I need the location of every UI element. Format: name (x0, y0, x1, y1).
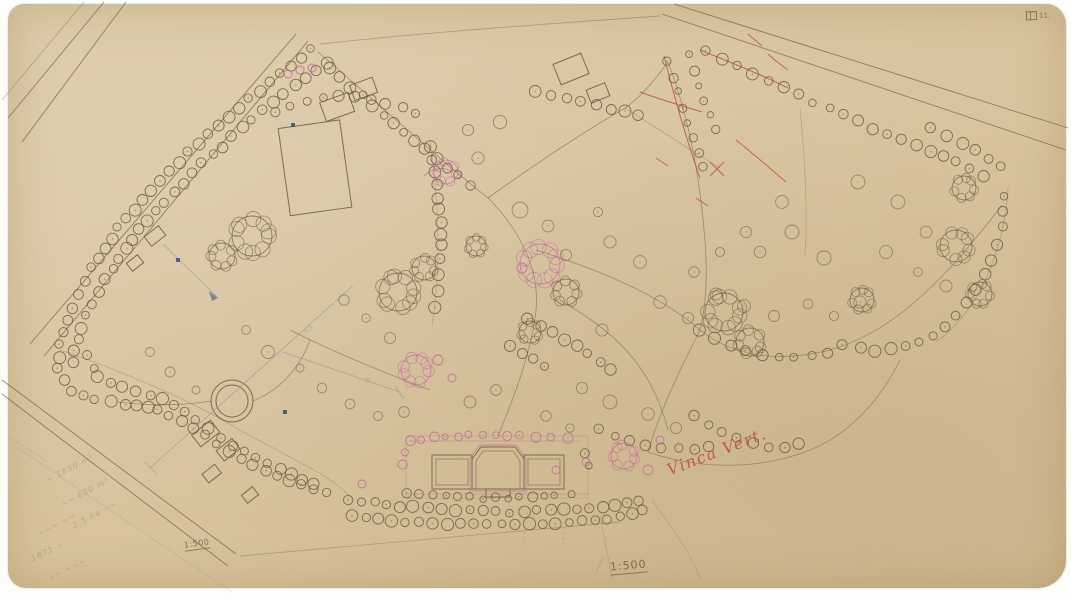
tree-symbol (606, 105, 616, 115)
tree-symbol (286, 102, 294, 110)
trees-layer (52, 45, 1007, 531)
tree-symbol (373, 513, 384, 524)
tree-center-dot (469, 509, 471, 511)
tree-symbol (712, 125, 720, 133)
tree-symbol (941, 130, 953, 142)
tree-center-dot (823, 257, 825, 259)
tree-center-dot (925, 231, 927, 233)
road-topleft-3 (2, 2, 84, 100)
tree-symbol (74, 290, 84, 300)
tree-symbol (512, 202, 528, 218)
tree-center-dot (220, 437, 222, 439)
tree-symbol (146, 348, 155, 357)
measure-text-layer: 4,56 (303, 324, 370, 385)
tree-center-dot (519, 434, 521, 436)
tree-center-dot (291, 473, 293, 475)
blue-marks-layer (176, 123, 295, 414)
measure-number: 6 (364, 377, 370, 385)
scanned-park-plan: 4,56 1:500 1:500 Vinca Vert. 11. ~ 1850 … (0, 0, 1071, 600)
survey-lines (8, 244, 604, 592)
tree-center-dot (495, 389, 497, 391)
tree-symbol (552, 466, 560, 474)
tree-symbol (634, 496, 644, 506)
tree-center-dot (351, 515, 353, 517)
tree-symbol (769, 311, 780, 322)
red-scribble (768, 54, 788, 70)
tree-center-dot (415, 113, 417, 115)
tree-symbol (583, 349, 592, 358)
tree-center-dot (403, 411, 405, 413)
tree-symbol (407, 500, 419, 512)
tree-symbol (300, 73, 311, 84)
tree-symbol (277, 89, 288, 100)
tree-symbol (255, 86, 267, 98)
tree-symbol (951, 311, 960, 320)
tree-symbol (869, 345, 881, 357)
tree-center-dot (193, 428, 195, 430)
tree-center-dot (798, 93, 800, 95)
tree-symbol (371, 498, 380, 507)
cluster-lobe (617, 440, 627, 450)
tree-symbol (482, 520, 491, 529)
tree-center-dot (169, 371, 171, 373)
palace-left-wing-inner (436, 459, 468, 485)
tree-center-dot (693, 415, 695, 417)
tree-center-dot (58, 343, 60, 345)
tree-symbol (776, 196, 789, 209)
cluster-lobe (423, 365, 434, 376)
tree-symbol (174, 157, 186, 169)
tree-center-dot (323, 97, 325, 99)
path-fountain-ne (253, 340, 310, 401)
tree-symbol (793, 438, 804, 449)
tree-symbol (498, 520, 506, 528)
tree-symbol (523, 518, 535, 530)
tree-center-dot (588, 508, 590, 510)
tree-center-dot (134, 209, 136, 211)
tree-symbol (193, 138, 205, 150)
tree-center-dot (265, 470, 267, 472)
tree-symbol (137, 195, 148, 206)
cluster-lobe (560, 276, 570, 286)
tree-center-dot (930, 127, 932, 129)
tree-center-dot (698, 152, 700, 154)
tree-center-dot (482, 434, 484, 436)
tree-symbol (380, 99, 391, 110)
tree-symbol (152, 207, 160, 215)
tree-symbol (380, 112, 388, 120)
tree-symbol (605, 364, 616, 375)
tree-symbol (430, 432, 440, 442)
tree-center-dot (218, 125, 220, 127)
tree-symbol (528, 492, 538, 502)
tree-center-dot (645, 445, 647, 447)
tree-symbol (237, 454, 246, 463)
tree-symbol (401, 518, 409, 526)
tree-symbol (339, 295, 349, 305)
cluster-lobe (701, 304, 715, 318)
tree-center-dot (86, 354, 88, 356)
cluster-lobe (969, 185, 978, 194)
inventory-stamp: 11. (1026, 11, 1050, 21)
tree-center-dot (150, 395, 152, 397)
tree-symbol (432, 285, 444, 297)
tree-symbol (91, 371, 103, 383)
tree-symbol (362, 513, 370, 521)
tree-symbol (696, 83, 702, 89)
tree-symbol (560, 249, 571, 260)
tree-center-dot (693, 271, 695, 273)
road-sw-1 (2, 380, 236, 554)
tree-center-dot (996, 244, 998, 246)
outbuilding-top-1 (553, 53, 589, 85)
tree-symbol (726, 340, 737, 351)
tree-symbol (603, 395, 617, 409)
tree-center-dot (444, 436, 446, 438)
tree-symbol (177, 416, 188, 427)
tree-center-dot (639, 261, 641, 263)
tree-center-dot (72, 308, 74, 310)
tree-symbol (541, 411, 551, 421)
tree-symbol (113, 223, 121, 231)
tree-symbol (996, 162, 1005, 171)
tree-symbol (465, 431, 472, 438)
tree-symbol (478, 505, 488, 515)
plan-drawing: 4,56 (0, 0, 1071, 600)
tree-center-dot (843, 113, 845, 115)
tree-symbol (192, 386, 200, 394)
tree-symbol (308, 478, 319, 489)
tree-symbol (466, 181, 475, 190)
tree-symbol (940, 280, 952, 292)
tree-center-dot (439, 258, 441, 260)
scale-label-main: 1:500 (609, 557, 647, 575)
tree-center-dot (547, 225, 549, 227)
tree-symbol (573, 505, 581, 513)
tree-symbol (121, 213, 131, 223)
tree-symbol (433, 203, 445, 215)
tree-symbol (297, 53, 307, 63)
tree-center-dot (365, 317, 367, 319)
tree-center-dot (905, 345, 907, 347)
tree-symbol (116, 381, 127, 392)
tree-symbol (518, 349, 528, 359)
tree-center-dot (687, 317, 689, 319)
road-ne-1 (662, 14, 1066, 150)
tree-center-dot (509, 345, 511, 347)
tree-center-dot (597, 211, 599, 213)
tree-center-dot (187, 151, 189, 153)
tree-symbol (234, 103, 245, 114)
tree-center-dot (666, 60, 668, 62)
tree-symbol (268, 96, 280, 108)
cluster-lobe (950, 254, 962, 266)
cluster-lobe (526, 318, 534, 326)
tree-center-dot (518, 496, 520, 498)
tree-symbol (63, 315, 73, 325)
tree-center-dot (569, 427, 571, 429)
tree-center-dot (595, 519, 597, 521)
palace-footprint (432, 447, 564, 497)
cluster-lobe (754, 329, 765, 340)
roadside-building-2 (126, 255, 143, 271)
cluster-lobe (864, 288, 873, 297)
cluster-lobe (608, 452, 618, 462)
tree-symbol (957, 138, 969, 150)
tree-symbol (505, 495, 512, 502)
cluster-lobe (216, 240, 226, 250)
tree-symbol (717, 428, 726, 437)
cluster-lobe (848, 298, 857, 307)
tree-symbol (317, 383, 327, 393)
tree-center-dot (600, 361, 602, 363)
tree-symbol (612, 432, 620, 440)
red-path-3 (700, 50, 788, 88)
tree-symbol (604, 236, 616, 248)
tree-symbol (670, 422, 681, 433)
tree-center-dot (83, 395, 85, 397)
tree-center-dot (157, 409, 159, 411)
tree-symbol (68, 357, 79, 368)
tree-center-dot (544, 366, 546, 368)
tree-symbol (94, 287, 105, 298)
tree-symbol (54, 352, 66, 364)
measure-line-1 (150, 291, 347, 468)
tree-symbol (142, 401, 154, 413)
tree-center-dot (85, 314, 87, 316)
tree-center-dot (267, 351, 269, 353)
tree-center-dot (424, 148, 426, 150)
tree-symbol (417, 436, 424, 443)
blue-marker-square (291, 123, 295, 127)
tree-center-dot (329, 67, 331, 69)
path-ne-field (800, 108, 806, 255)
tree-symbol (283, 475, 295, 487)
tree-symbol (808, 351, 816, 359)
tree-symbol (322, 488, 330, 496)
tree-symbol (775, 353, 783, 361)
tree-center-dot (482, 499, 484, 501)
tree-symbol (284, 70, 292, 78)
tree-center-dot (514, 524, 516, 526)
tree-symbol (59, 375, 70, 386)
tree-symbol (455, 433, 463, 441)
tree-center-dot (404, 452, 406, 454)
palace-center-bay-inner (476, 451, 520, 489)
tree-center-dot (705, 50, 707, 52)
tree-center-dot (299, 367, 301, 369)
tree-symbol (596, 324, 608, 336)
tree-symbol (915, 338, 923, 346)
tree-cluster (705, 293, 743, 331)
outbuilding-nw-2 (350, 77, 378, 100)
tree-center-dot (688, 53, 690, 55)
tree-center-dot (230, 135, 232, 137)
tree-center-dot (550, 509, 552, 511)
tree-symbol (980, 269, 991, 280)
tree-center-dot (567, 437, 569, 439)
path-to-ne (488, 62, 668, 198)
path-cross-top (625, 108, 720, 168)
tree-symbol (656, 436, 664, 444)
tree-center-dot (841, 344, 843, 346)
tree-center-dot (930, 151, 932, 153)
measure-tick-2 (395, 386, 404, 399)
tree-symbol (853, 115, 864, 126)
tree-symbol (826, 104, 834, 112)
path-lawn-south (290, 330, 430, 390)
red-ink-corrections (640, 34, 788, 206)
tree-center-dot (467, 129, 469, 131)
tree-symbol (519, 506, 531, 518)
tree-center-dot (477, 157, 479, 159)
tree-symbol (829, 311, 838, 320)
tree-center-dot (90, 266, 92, 268)
tree-symbol (100, 243, 111, 254)
tree-symbol (87, 300, 96, 309)
tree-center-dot (1003, 196, 1005, 198)
tree-center-dot (584, 453, 586, 455)
fountain-outer (211, 380, 253, 422)
road-topleft-2 (22, 2, 126, 142)
crease-line-1 (18, 448, 232, 592)
cluster-lobe (961, 173, 970, 182)
tree-symbol (911, 139, 923, 151)
tree-symbol (577, 516, 587, 526)
tree-center-dot (624, 110, 626, 112)
tree-symbol (240, 447, 248, 455)
red-path-4 (736, 140, 786, 182)
tree-symbol (637, 505, 647, 515)
roadside-building-4 (241, 487, 258, 503)
tree-symbol (998, 206, 1008, 216)
tree-symbol (572, 340, 583, 351)
tree-cluster (952, 176, 976, 200)
fountain-inner (216, 385, 248, 417)
tree-symbol (449, 505, 461, 517)
tree-center-dot (200, 162, 202, 164)
tree-symbol (133, 224, 144, 235)
tree-symbol (598, 502, 609, 513)
tree-symbol (263, 459, 271, 467)
tree-symbol (409, 135, 420, 146)
tree-symbol (785, 225, 799, 239)
blue-marker-square (283, 410, 287, 414)
tree-symbol (187, 168, 197, 178)
tree-symbol (699, 162, 708, 171)
tree-symbol (74, 335, 83, 344)
stamp-number: 11. (1039, 11, 1050, 19)
tree-symbol (951, 157, 960, 166)
tree-center-dot (807, 303, 809, 305)
tree-center-dot (184, 411, 186, 413)
tree-symbol (558, 503, 570, 515)
blue-marker-square (176, 258, 180, 262)
walled-garden-building (278, 120, 352, 216)
tree-symbol (867, 124, 878, 135)
red-tick-3 (748, 34, 762, 46)
tree-symbol (547, 433, 555, 441)
tree-symbol (191, 416, 199, 424)
cluster-lobe (420, 253, 429, 262)
tree-symbol (400, 128, 408, 136)
tree-symbol (436, 503, 447, 514)
cluster-lobe (380, 297, 394, 311)
tree-symbol (929, 332, 937, 340)
tree-center-dot (295, 84, 297, 86)
tree-symbol (633, 110, 644, 121)
tree-center-dot (255, 457, 257, 459)
tree-symbol (432, 193, 443, 204)
tree-symbol (491, 507, 500, 516)
tree-symbol (164, 411, 173, 420)
tree-center-dot (860, 347, 862, 349)
tree-center-dot (793, 356, 795, 358)
tree-symbol (398, 103, 407, 112)
path-east-long (536, 205, 1002, 357)
tree-symbol (296, 66, 304, 74)
tree-center-dot (564, 339, 566, 341)
tree-symbol (896, 134, 906, 144)
tree-symbol (373, 411, 382, 420)
tree-center-dot (410, 440, 412, 442)
palace-pink-outline (470, 445, 526, 491)
tree-center-dot (859, 301, 861, 303)
tree-center-dot (406, 493, 408, 495)
tree-symbol (414, 517, 423, 526)
cluster-lobe (966, 176, 975, 185)
tree-symbol (130, 386, 141, 397)
cluster-lobe (478, 236, 486, 244)
tree-center-dot (632, 513, 634, 515)
tree-center-dot (682, 108, 684, 110)
tree-center-dot (446, 495, 448, 497)
tree-center-dot (580, 101, 582, 103)
tree-symbol (705, 421, 713, 429)
tree-center-dot (554, 523, 556, 525)
tree-symbol (616, 512, 624, 520)
tree-center-dot (247, 97, 249, 99)
path-allee-end (652, 500, 700, 578)
cluster-lobe (246, 211, 261, 226)
tree-center-dot (917, 271, 919, 273)
tree-clusters-layer (206, 157, 995, 470)
tree-center-dot (371, 99, 373, 101)
tree-center-dot (125, 404, 127, 406)
cluster-lobe (232, 217, 247, 232)
tree-center-dot (349, 403, 351, 405)
red-path-2 (640, 92, 702, 112)
road-nw-1 (30, 34, 296, 344)
cluster-lobe (376, 279, 390, 293)
cluster-lobe (255, 242, 270, 257)
tree-center-dot (553, 494, 555, 496)
tree-symbol (656, 443, 666, 453)
path-center-south (488, 198, 537, 436)
tree-symbol (715, 247, 724, 256)
tree-center-dot (362, 94, 364, 96)
tree-symbol (247, 116, 255, 124)
tree-center-dot (393, 122, 395, 124)
tree-symbol (609, 499, 621, 511)
palace-left-wing (432, 455, 472, 489)
tree-symbol (94, 253, 105, 264)
cluster-lobe (612, 443, 622, 453)
tree-symbol (885, 343, 897, 355)
cluster-lobe (732, 301, 746, 315)
tree-center-dot (752, 73, 754, 75)
tree-symbol (159, 198, 168, 207)
